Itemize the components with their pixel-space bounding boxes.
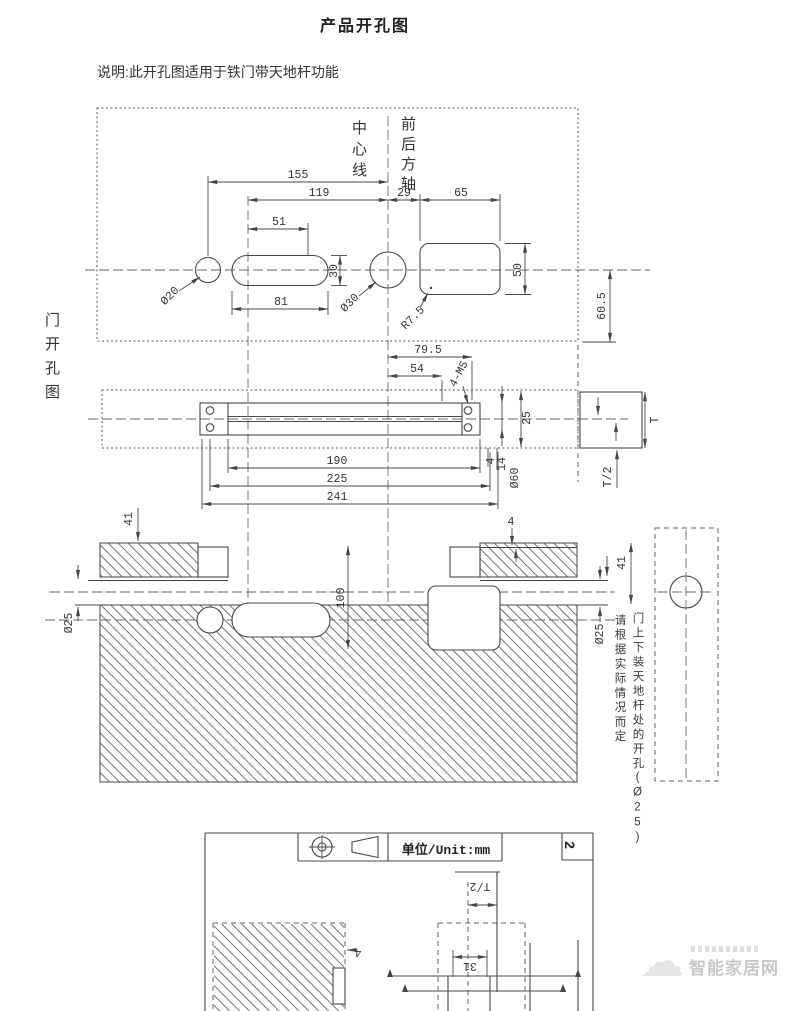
dim-41-left: 41 bbox=[123, 512, 136, 526]
watermark-small-text bbox=[691, 946, 761, 952]
dim-30: 30 bbox=[328, 264, 341, 278]
dim-51: 51 bbox=[272, 216, 286, 229]
top-view: 155 119 29 65 51 81 30 Ø20 Ø30 R7.5 bbox=[85, 108, 650, 342]
dim-dia30: Ø30 bbox=[338, 291, 362, 315]
dim-r7-5: R7.5 bbox=[399, 304, 428, 333]
dim-41-right: 41 bbox=[616, 556, 629, 570]
watermark-brand-text: 智能家居网 bbox=[689, 954, 779, 979]
dim-225: 225 bbox=[327, 473, 348, 486]
dim-4m5: 4-M5 bbox=[447, 359, 471, 390]
dim-50: 50 bbox=[512, 263, 525, 277]
page-title: 产品开孔图 bbox=[320, 12, 410, 36]
rod-hole-note-line1: 门上下装天地杆处的开孔(Ø25) bbox=[631, 612, 643, 847]
dim-54: 54 bbox=[410, 363, 424, 376]
front-back-axis-label: 前后方轴 bbox=[400, 116, 415, 196]
watermark: ☁ 智能家居网 bbox=[638, 920, 790, 992]
first-angle-projection-icon bbox=[309, 835, 378, 859]
dim-t2: T/2 bbox=[602, 467, 615, 488]
rod-hole-note-line2: 请根据实际情况而定 bbox=[613, 614, 625, 745]
dim-155: 155 bbox=[288, 169, 309, 182]
dim-81: 81 bbox=[274, 296, 288, 309]
dim-dia20: Ø20 bbox=[158, 284, 182, 308]
edge-view: 79.5 54 4-M5 190 225 241 25 4 14 Ø60 bbox=[88, 344, 662, 509]
dim-100: 100 bbox=[335, 588, 348, 609]
note-text: 说明:此开孔图适用于铁门带天地杆功能 bbox=[97, 62, 339, 82]
center-line-label: 中心线 bbox=[351, 120, 366, 183]
dim-60-5: 60.5 bbox=[596, 292, 609, 320]
drawing-page: 155 119 29 65 51 81 30 Ø20 Ø30 R7.5 bbox=[0, 0, 790, 1011]
dim-dia60: Ø60 bbox=[509, 468, 522, 489]
dim-dia25-left: Ø25 bbox=[63, 613, 76, 634]
dim-25: 25 bbox=[521, 411, 534, 425]
dim-190: 190 bbox=[327, 455, 348, 468]
dim-119: 119 bbox=[309, 187, 330, 200]
dim-79-5: 79.5 bbox=[414, 344, 442, 357]
dim-4-sheet2: 4 bbox=[354, 945, 361, 958]
page-number: 2 bbox=[562, 841, 578, 849]
dim-31-sheet2: 31 bbox=[463, 959, 477, 972]
technical-drawing: 155 119 29 65 51 81 30 Ø20 Ø30 R7.5 bbox=[0, 0, 790, 1011]
dim-t: T bbox=[649, 416, 662, 423]
dim-241: 241 bbox=[327, 491, 348, 504]
sheet2: 4 T/2 31 bbox=[205, 833, 593, 1011]
cloud-logo-icon: ☁ bbox=[640, 936, 684, 987]
dim-65: 65 bbox=[454, 187, 468, 200]
dim-14: 14 bbox=[496, 457, 509, 471]
reference-dot bbox=[430, 287, 432, 289]
dim-dia25-right: Ø25 bbox=[594, 624, 607, 645]
door-view-label: 门开孔图 bbox=[44, 312, 59, 408]
dim-4-section: 4 bbox=[508, 516, 515, 529]
unit-label: 单位/Unit:mm bbox=[390, 839, 502, 858]
dim-t2-sheet2: T/2 bbox=[470, 879, 491, 892]
